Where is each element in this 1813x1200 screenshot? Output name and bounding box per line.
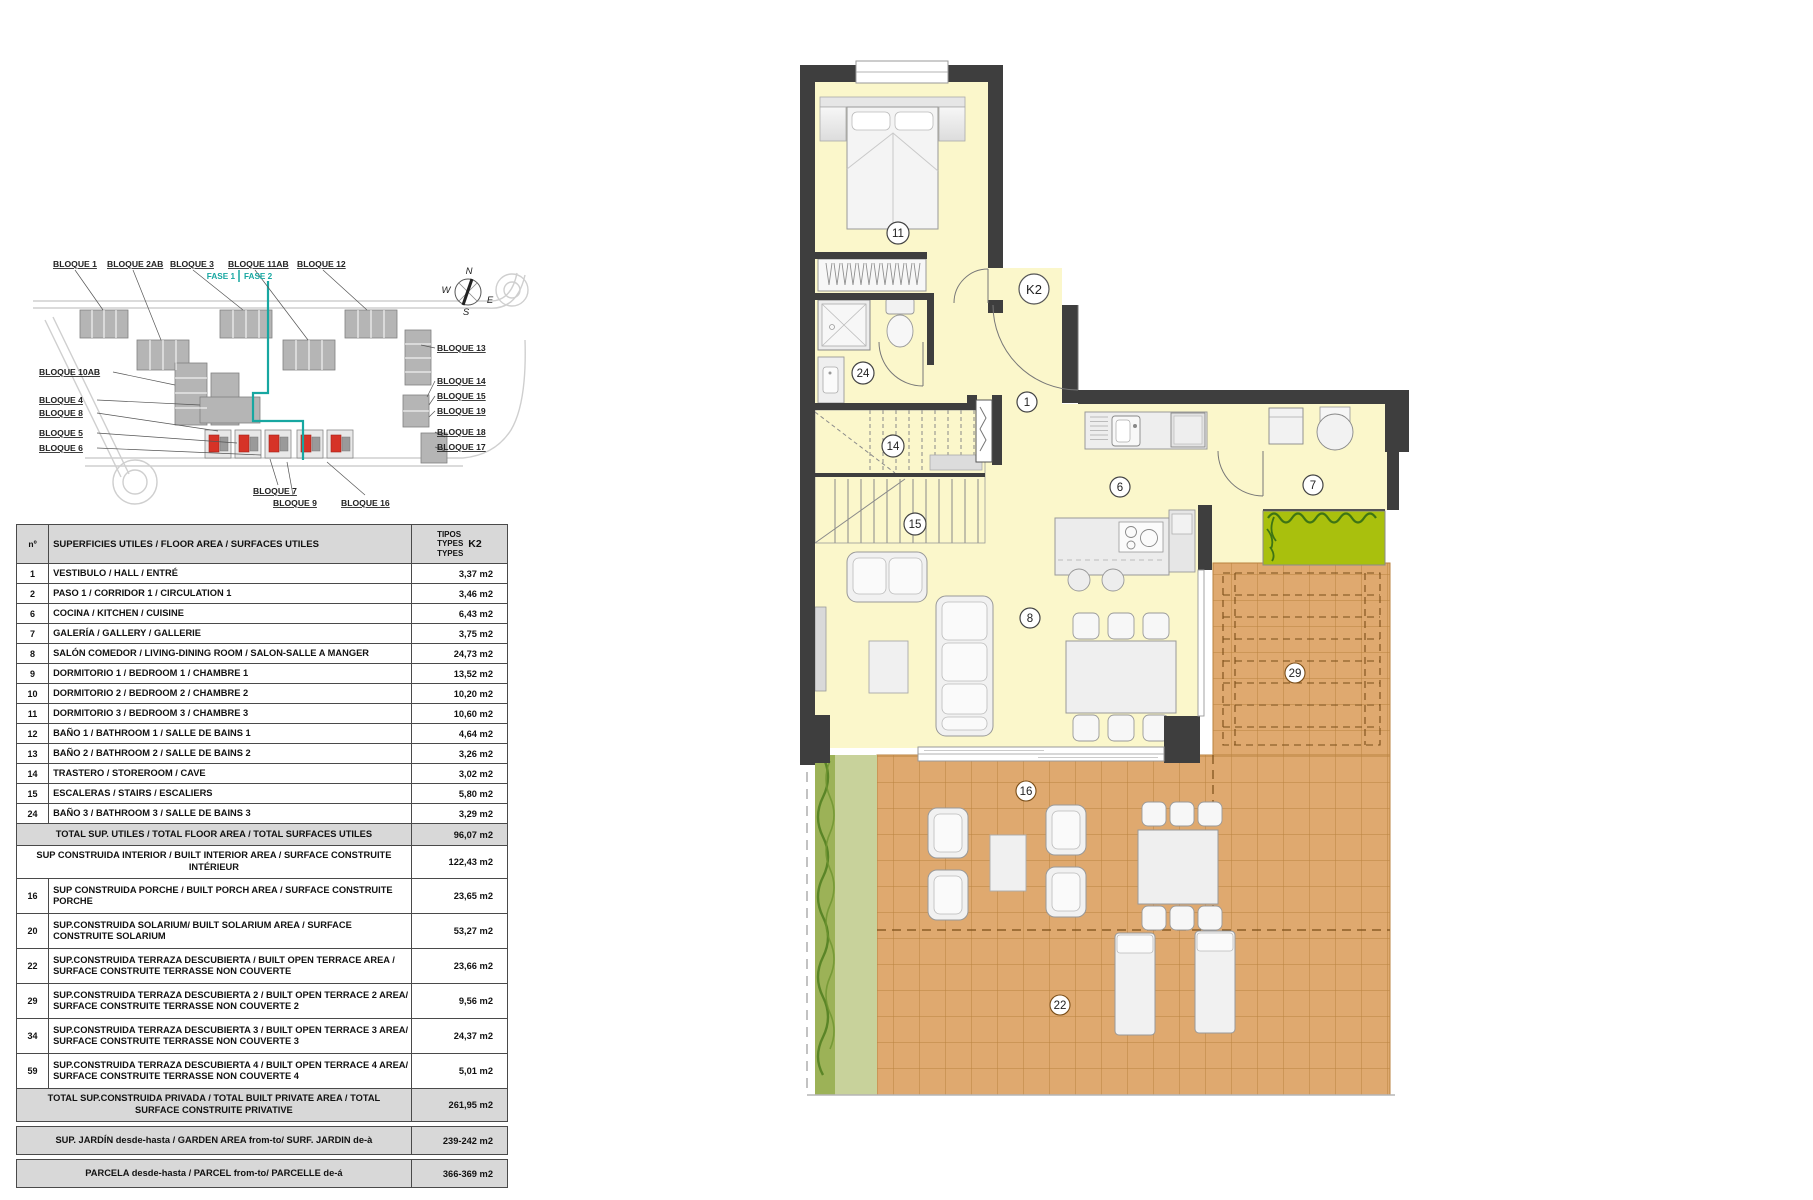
room-badge-storeroom: 14: [882, 435, 904, 457]
built-interior-row: SUP CONSTRUIDA INTERIOR / BUILT INTERIOR…: [17, 846, 508, 879]
built-row: 34SUP.CONSTRUIDA TERRAZA DESCUBIERTA 3 /…: [17, 1019, 508, 1054]
header-types: TIPOS TYPES TYPES K2: [411, 525, 507, 564]
table-row: 12BAÑO 1 / BATHROOM 1 / SALLE DE BAINS 1…: [17, 724, 508, 744]
bar-stool: [1068, 569, 1090, 591]
table-row: 14TRASTERO / STOREROOM / CAVE3,02 m2: [17, 764, 508, 784]
site-buildings: [80, 310, 447, 463]
label-leader-lines: [75, 270, 445, 495]
room-badge-living: 8: [1020, 608, 1040, 628]
jardin-row: SUP. JARDÍN desde-hasta / GARDEN AREA fr…: [17, 1127, 508, 1155]
compass-w: W: [442, 285, 452, 296]
bloque-4-label: BLOQUE 4: [39, 395, 83, 405]
compass-s: S: [463, 307, 470, 318]
bloque-9-label: BLOQUE 9: [273, 498, 317, 508]
table-row: 15ESCALERAS / STAIRS / ESCALIERS5,80 m2: [17, 784, 508, 804]
stair-landing: [930, 455, 982, 470]
headboard-shelf: [820, 97, 965, 107]
pergola-terrace-tiles: [1213, 563, 1390, 755]
bloque-13-label: BLOQUE 13: [437, 343, 486, 353]
table-row: 7GALERÍA / GALLERY / GALLERIE3,75 m2: [17, 624, 508, 644]
water-heater: [1317, 414, 1353, 450]
types-line-3: TYPES: [437, 549, 463, 558]
built-row: 59SUP.CONSTRUIDA TERRAZA DESCUBIERTA 4 /…: [17, 1054, 508, 1089]
table-row: 11DORMITORIO 3 / BEDROOM 3 / CHAMBRE 310…: [17, 704, 508, 724]
types-line-1: TIPOS: [437, 530, 463, 539]
bloque-18-label: BLOQUE 18: [437, 427, 486, 437]
built-row: 20SUP.CONSTRUIDA SOLARIUM/ BUILT SOLARIU…: [17, 914, 508, 949]
bloque-2ab-label: BLOQUE 2AB: [107, 259, 163, 269]
room-badge-bathroom3: 24: [852, 362, 874, 384]
nightstand-left: [820, 107, 846, 141]
pillow-right: [895, 112, 933, 130]
svg-text:7: 7: [1310, 480, 1316, 492]
room-badge-bedroom3: 11: [887, 222, 909, 244]
built-row: 29SUP.CONSTRUIDA TERRAZA DESCUBIERTA 2 /…: [17, 984, 508, 1019]
table-row: 6COCINA / KITCHEN / CUISINE6,43 m2: [17, 604, 508, 624]
table-row: 9DORMITORIO 1 / BEDROOM 1 / CHAMBRE 113,…: [17, 664, 508, 684]
bloque-6-label: BLOQUE 6: [39, 443, 83, 453]
svg-text:6: 6: [1117, 482, 1123, 494]
parcela-row: PARCELA desde-hasta / PARCEL from-to/ PA…: [17, 1160, 508, 1188]
table-row: 2PASO 1 / CORRIDOR 1 / CIRCULATION 13,46…: [17, 584, 508, 604]
bloque-7-label: BLOQUE 7: [253, 486, 297, 496]
bloque-1-label: BLOQUE 1: [53, 259, 97, 269]
room-badge-stairs: 15: [904, 513, 926, 535]
table-row: 24BAÑO 3 / BATHROOM 3 / SALLE DE BAINS 3…: [17, 804, 508, 824]
bloque-12-label: BLOQUE 12: [297, 259, 346, 269]
compass-n: N: [466, 266, 473, 277]
built-row: 22SUP.CONSTRUIDA TERRAZA DESCUBIERTA / B…: [17, 949, 508, 984]
floorplan-document-page: BLOQUE 1 BLOQUE 2AB BLOQUE 3 BLOQUE 11AB…: [0, 0, 1813, 1200]
main-terrace-tiles: [877, 755, 1390, 1095]
room-badge-terrace2: 29: [1285, 663, 1305, 683]
area-table: nº SUPERFICIES UTILES / FLOOR AREA / SUR…: [16, 524, 508, 1122]
tv-unit: [815, 607, 826, 691]
types-line-2: TYPES: [437, 539, 463, 548]
room-badge-open-terrace: 22: [1050, 995, 1070, 1015]
room-badge-porch: 16: [1016, 781, 1036, 801]
site-roads: [33, 273, 528, 504]
table-row: 8SALÓN COMEDOR / LIVING-DINING ROOM / SA…: [17, 644, 508, 664]
table-row: 1VESTIBULO / HALL / ENTRÉ3,37 m2: [17, 564, 508, 584]
table-header-row: nº SUPERFICIES UTILES / FLOOR AREA / SUR…: [17, 525, 508, 564]
svg-text:22: 22: [1054, 1000, 1067, 1012]
stair-divider-wall: [815, 473, 985, 477]
compass-e: E: [487, 295, 494, 306]
fase-1-label: FASE 1: [207, 272, 236, 281]
bloque-3-label: BLOQUE 3: [170, 259, 214, 269]
bloque-10ab-label: BLOQUE 10AB: [39, 367, 100, 377]
bloque-16-label: BLOQUE 16: [341, 498, 390, 508]
toilet-bowl: [887, 315, 913, 347]
header-num: nº: [17, 525, 49, 564]
room-badge-kitchen: 6: [1110, 477, 1130, 497]
svg-text:K2: K2: [1026, 282, 1042, 297]
bar-stool: [1102, 569, 1124, 591]
outdoor-dining-table: [1138, 830, 1218, 904]
svg-text:16: 16: [1020, 786, 1033, 798]
site-plan: BLOQUE 1 BLOQUE 2AB BLOQUE 3 BLOQUE 11AB…: [25, 245, 545, 520]
bloque-8-label: BLOQUE 8: [39, 408, 83, 418]
parcel-area-table: PARCELA desde-hasta / PARCEL from-to/ PA…: [16, 1159, 508, 1188]
area-table-section: nº SUPERFICIES UTILES / FLOOR AREA / SUR…: [16, 524, 508, 1192]
svg-text:29: 29: [1289, 668, 1302, 680]
total-utiles-row: TOTAL SUP. UTILES / TOTAL FLOOR AREA / T…: [17, 824, 508, 846]
room-badge-hall: 1: [1017, 392, 1037, 412]
header-label: SUPERFICIES UTILES / FLOOR AREA / SURFAC…: [49, 525, 412, 564]
bloque-11ab-label: BLOQUE 11AB: [228, 259, 289, 269]
svg-text:11: 11: [892, 228, 904, 240]
outdoor-coffee-table: [990, 835, 1026, 891]
bloque-17-label: BLOQUE 17: [437, 442, 486, 452]
planter-box: [1263, 510, 1385, 565]
total-privada-row: TOTAL SUP.CONSTRUIDA PRIVADA / TOTAL BUI…: [17, 1089, 508, 1122]
floor-plan: 11 24 14 15 1 6 7 8 16 29 22 K2: [790, 55, 1440, 1105]
room-badge-gallery: 7: [1303, 475, 1323, 495]
bloque-19-label: BLOQUE 19: [437, 406, 486, 416]
table-row: 13BAÑO 2 / BATHROOM 2 / SALLE DE BAINS 2…: [17, 744, 508, 764]
svg-text:15: 15: [909, 519, 922, 531]
compass-rose: N W E S: [442, 266, 494, 318]
living-terrace-window: [1198, 570, 1204, 716]
fase-2-label: FASE 2: [244, 272, 273, 281]
nightstand-right: [939, 107, 965, 141]
duct-shaft: [976, 400, 992, 462]
pillow-left: [852, 112, 890, 130]
svg-text:8: 8: [1027, 613, 1033, 625]
bloque-15-label: BLOQUE 15: [437, 391, 486, 401]
dining-table: [1066, 641, 1176, 713]
toilet-tank: [886, 298, 914, 314]
garden-area-table: SUP. JARDÍN desde-hasta / GARDEN AREA fr…: [16, 1126, 508, 1155]
unit-type-code: K2: [468, 538, 481, 550]
svg-text:1: 1: [1024, 397, 1030, 409]
unit-type-badge: K2: [1019, 274, 1049, 304]
svg-text:24: 24: [857, 368, 870, 380]
washing-machine: [1269, 408, 1303, 444]
svg-text:14: 14: [887, 441, 900, 453]
built-row: 16SUP CONSTRUIDA PORCHE / BUILT PORCH AR…: [17, 879, 508, 914]
bloque-14-label: BLOQUE 14: [437, 376, 486, 386]
coffee-table: [869, 641, 908, 693]
table-row: 10DORMITORIO 2 / BEDROOM 2 / CHAMBRE 210…: [17, 684, 508, 704]
bloque-5-label: BLOQUE 5: [39, 428, 83, 438]
